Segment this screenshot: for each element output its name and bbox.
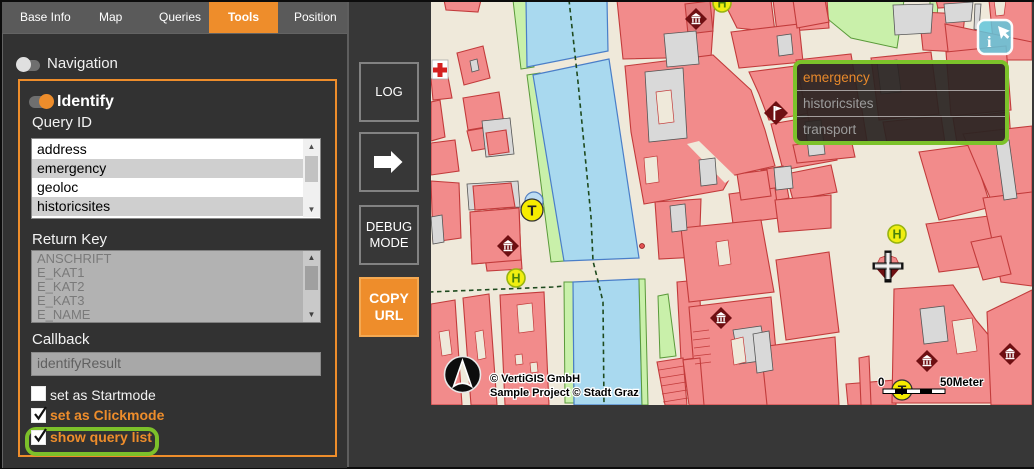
- svg-text:50Meter: 50Meter: [940, 377, 984, 389]
- svg-text:T: T: [527, 203, 536, 220]
- svg-text:H: H: [892, 228, 901, 242]
- svg-text:H: H: [717, 2, 726, 11]
- svg-text:i: i: [987, 34, 992, 51]
- svg-text:© VertiGIS GmbH: © VertiGIS GmbH: [490, 373, 580, 385]
- svg-text:H: H: [511, 272, 520, 286]
- svg-text:0: 0: [878, 377, 884, 389]
- svg-text:Sample Project © Stadt Graz: Sample Project © Stadt Graz: [490, 387, 639, 399]
